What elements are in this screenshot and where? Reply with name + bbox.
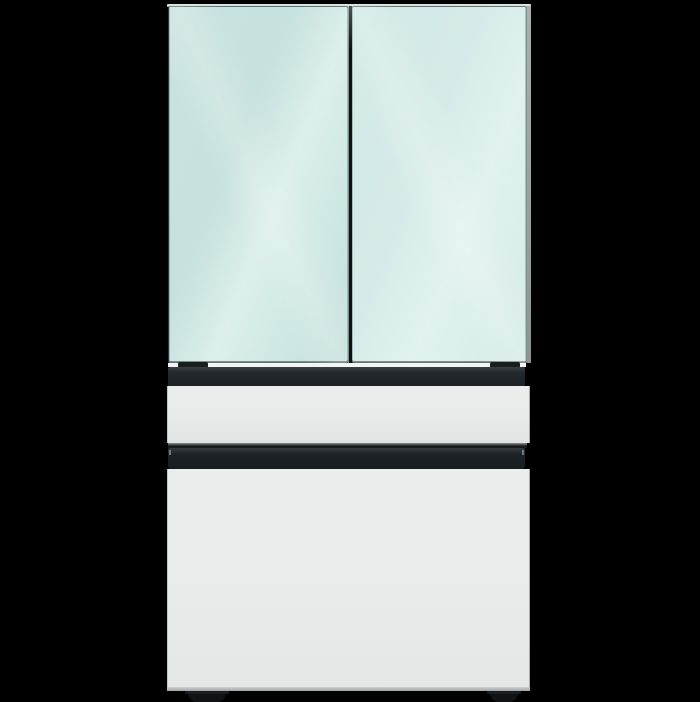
middle-drawer — [167, 386, 530, 443]
cabinet-right-side — [527, 6, 531, 363]
photo-caption: Studio product photo on a black backgrou… — [0, 0, 1, 1]
door-bottom-trim-band — [168, 367, 525, 386]
refrigerator — [167, 4, 531, 698]
bottom-drawer-handle-bar — [168, 448, 525, 469]
bottom-drawer — [167, 469, 530, 687]
photo-background: Studio product photo on a black backgrou… — [0, 0, 700, 700]
left-foot — [188, 691, 226, 702]
upper-doors — [167, 6, 527, 363]
glass-reflection — [169, 6, 348, 363]
right-foot — [490, 691, 518, 702]
upper-left-door — [168, 6, 348, 363]
upper-right-door — [352, 6, 527, 363]
glass-reflection — [352, 6, 526, 363]
